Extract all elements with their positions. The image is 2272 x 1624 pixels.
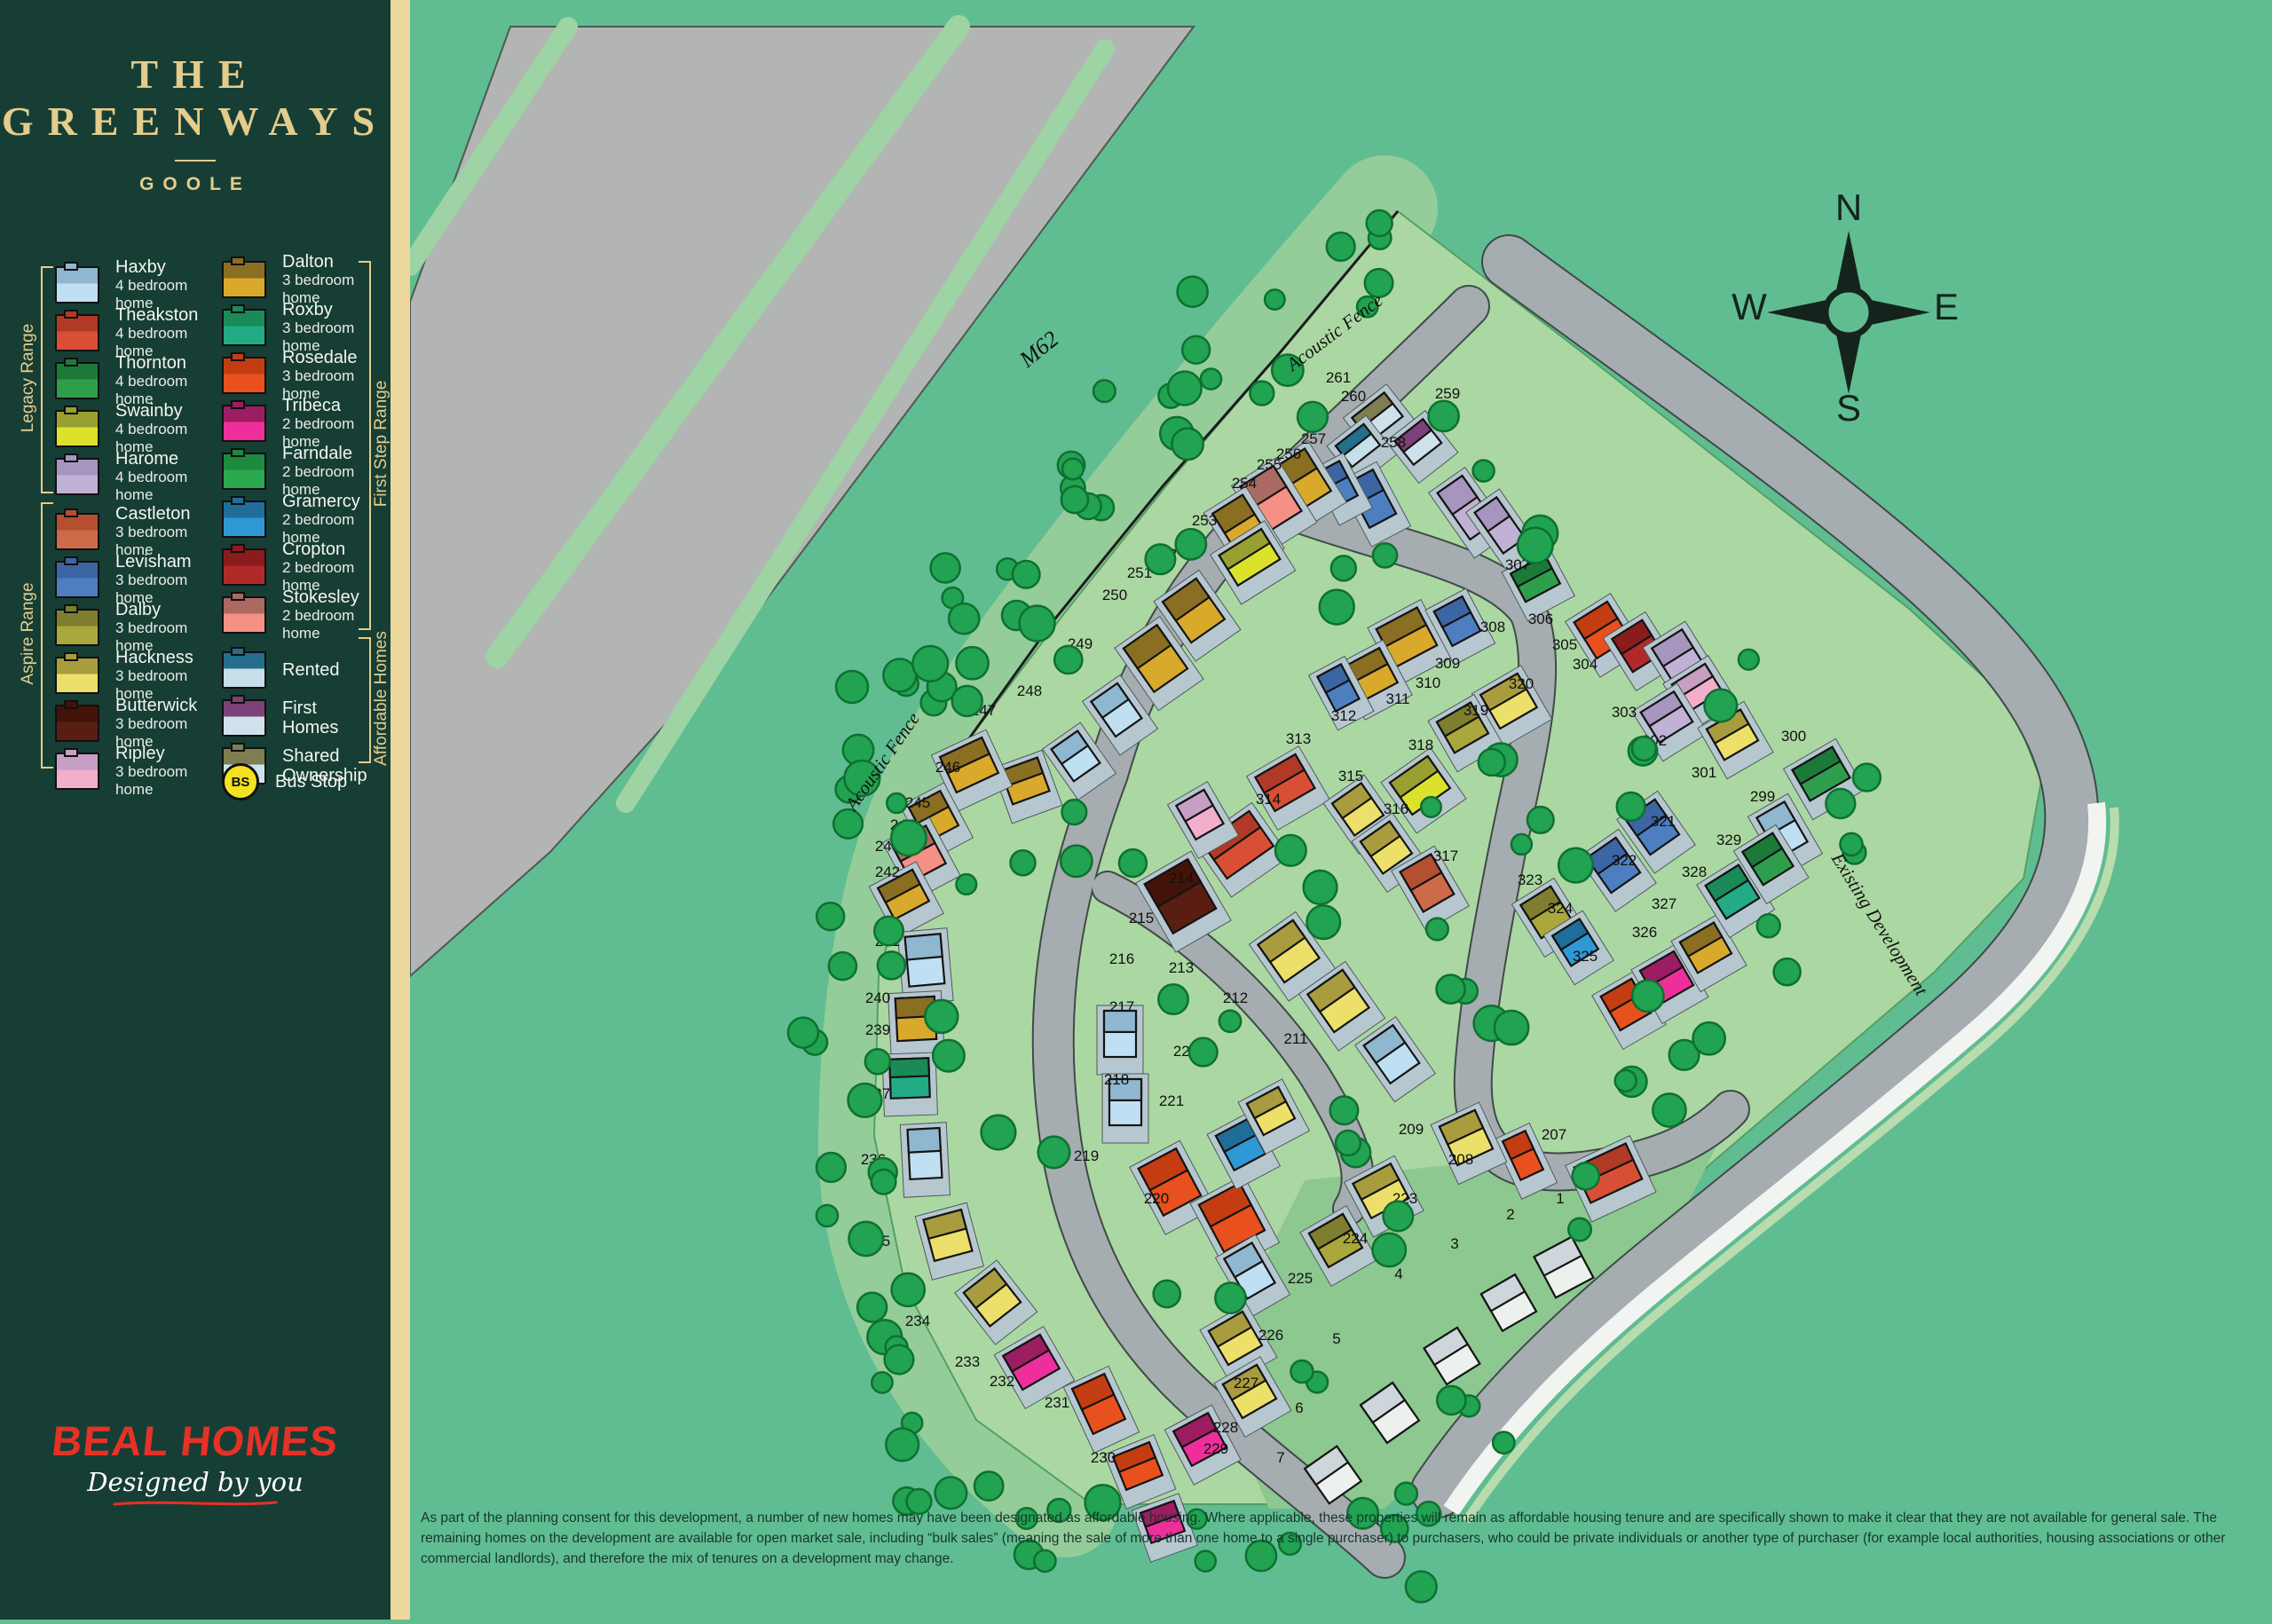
chimney bbox=[231, 544, 245, 553]
chimney bbox=[231, 592, 245, 601]
plot-number: 308 bbox=[1480, 619, 1505, 635]
tree-icon bbox=[1406, 1572, 1437, 1603]
tree-icon bbox=[1853, 764, 1881, 792]
plot-number: 316 bbox=[1384, 800, 1408, 817]
tree-icon bbox=[1384, 1202, 1414, 1232]
legend-item-firsthomes: First Homes bbox=[222, 696, 377, 740]
tree-icon bbox=[788, 1018, 818, 1048]
plot-number: 310 bbox=[1416, 674, 1440, 691]
bus-stop-legend-item: BS Bus Stop bbox=[222, 763, 347, 800]
tree-icon bbox=[1265, 289, 1284, 309]
tree-icon bbox=[1146, 544, 1176, 574]
tree-icon bbox=[1020, 606, 1055, 642]
legend-item-tribeca: Tribeca 2 bedroom home bbox=[222, 401, 377, 445]
tree-icon bbox=[982, 1116, 1016, 1150]
tree-icon bbox=[1219, 1011, 1241, 1032]
legend-item-text: Harome 4 bedroom home bbox=[115, 449, 224, 505]
tree-icon bbox=[1330, 1097, 1359, 1125]
plot-number: 232 bbox=[990, 1373, 1014, 1390]
tree-icon bbox=[925, 1000, 958, 1033]
rosedale-house-icon bbox=[222, 357, 266, 394]
plot-number: 318 bbox=[1408, 737, 1433, 753]
tree-icon bbox=[1154, 1281, 1180, 1307]
plot-number: 4 bbox=[1394, 1265, 1402, 1282]
range-bracket-label: First Step Range bbox=[372, 381, 391, 508]
range-group-first-step-range: Dalton 3 bedroom home Roxby 3 bedroom ho… bbox=[222, 257, 377, 637]
tree-icon bbox=[857, 1293, 887, 1322]
tree-icon bbox=[1615, 1070, 1637, 1092]
plot-number: 314 bbox=[1256, 791, 1281, 808]
plot-number: 225 bbox=[1288, 1270, 1313, 1287]
chimney bbox=[64, 406, 78, 414]
dalton-house-icon bbox=[222, 261, 266, 298]
legend-item-thornton: Thornton 4 bedroom home bbox=[55, 359, 224, 403]
tree-icon bbox=[816, 1153, 846, 1182]
tree-icon bbox=[1617, 792, 1645, 821]
chimney bbox=[231, 400, 245, 409]
plot-number: 326 bbox=[1632, 924, 1657, 941]
house-type-name: Hackness bbox=[115, 648, 224, 667]
ripley-house-icon bbox=[55, 753, 99, 790]
tree-icon bbox=[1298, 402, 1328, 432]
compass-hub bbox=[1826, 289, 1872, 335]
dalby-house-icon bbox=[55, 609, 99, 646]
tree-icon bbox=[1061, 486, 1088, 513]
house-type-name: Harome bbox=[115, 449, 224, 469]
legend-item-rosedale: Rosedale 3 bedroom home bbox=[222, 353, 377, 398]
tree-icon bbox=[1568, 1218, 1590, 1241]
plot-number: 253 bbox=[1192, 512, 1217, 529]
chimney bbox=[64, 604, 78, 613]
rented-house-icon bbox=[222, 651, 266, 689]
house bbox=[900, 1123, 950, 1198]
tree-icon bbox=[829, 952, 856, 980]
tree-icon bbox=[1429, 401, 1459, 431]
tagline-underline bbox=[111, 1499, 280, 1508]
tree-icon bbox=[1304, 871, 1337, 904]
roxby-house-icon bbox=[222, 309, 266, 346]
tree-icon bbox=[952, 686, 982, 716]
legend-sidebar: THE GREENWAYS GOOLE Haxby 4 bedroom home… bbox=[0, 0, 390, 1620]
legend-item-swainby: Swainby 4 bedroom home bbox=[55, 406, 224, 451]
tree-icon bbox=[885, 1345, 914, 1375]
tree-icon bbox=[1373, 1234, 1406, 1266]
chimney bbox=[231, 743, 245, 752]
chimney bbox=[231, 448, 245, 457]
tree-icon bbox=[1158, 984, 1187, 1013]
plot-number: 208 bbox=[1448, 1151, 1473, 1168]
chimney bbox=[64, 453, 78, 462]
chimney bbox=[64, 652, 78, 661]
tree-icon bbox=[1171, 429, 1203, 460]
tree-icon bbox=[1093, 380, 1116, 402]
tree-icon bbox=[874, 917, 903, 946]
range-bracket-label: Affordable Homes bbox=[372, 631, 391, 766]
tree-icon bbox=[1437, 975, 1465, 1004]
tree-icon bbox=[1367, 210, 1392, 236]
plot-number: 229 bbox=[1203, 1440, 1228, 1457]
tree-icon bbox=[1373, 543, 1397, 567]
tree-icon bbox=[974, 1471, 1003, 1500]
brand-logo: BEAL HOMES bbox=[0, 1416, 393, 1465]
chimney bbox=[64, 262, 78, 271]
plot-number: 324 bbox=[1548, 900, 1573, 917]
harome-house-icon bbox=[55, 458, 99, 495]
tree-icon bbox=[1119, 849, 1147, 877]
tree-icon bbox=[935, 1478, 967, 1510]
plot-number: 327 bbox=[1652, 895, 1676, 912]
plot-number: 231 bbox=[1045, 1394, 1069, 1411]
firsthomes-house-icon bbox=[222, 699, 266, 737]
tree-icon bbox=[956, 874, 976, 895]
gramercy-house-icon bbox=[222, 501, 266, 538]
plot-number: 322 bbox=[1612, 852, 1637, 869]
chimney bbox=[64, 700, 78, 709]
tree-icon bbox=[1010, 850, 1035, 875]
plot-number: 212 bbox=[1223, 989, 1248, 1006]
tree-icon bbox=[1632, 980, 1664, 1012]
range-group-legacy-range: Haxby 4 bedroom home Theakston 4 bedroom… bbox=[55, 263, 224, 499]
legend-item-harome: Harome 4 bedroom home bbox=[55, 454, 224, 499]
chimney bbox=[64, 508, 78, 517]
page: THE GREENWAYS GOOLE Haxby 4 bedroom home… bbox=[0, 0, 2272, 1620]
legend-item-theakston: Theakston 4 bedroom home bbox=[55, 311, 224, 355]
cropton-house-icon bbox=[222, 548, 266, 586]
tree-icon bbox=[1757, 914, 1780, 937]
tree-icon bbox=[1331, 556, 1356, 580]
plot-number: 230 bbox=[1091, 1449, 1116, 1466]
plot-number: 260 bbox=[1341, 388, 1366, 405]
plot-number: 321 bbox=[1651, 813, 1676, 830]
haxby-house-icon bbox=[55, 266, 99, 304]
tree-icon bbox=[1013, 561, 1040, 588]
range-bracket bbox=[41, 502, 53, 769]
tree-icon bbox=[848, 1084, 882, 1117]
page-title: THE GREENWAYS bbox=[0, 51, 390, 146]
tree-icon bbox=[1527, 807, 1554, 833]
tree-icon bbox=[1182, 336, 1210, 364]
tree-icon bbox=[865, 1049, 890, 1074]
tree-icon bbox=[1062, 459, 1084, 480]
plot-number: 258 bbox=[1381, 434, 1406, 451]
plot-number: 255 bbox=[1257, 456, 1282, 473]
tribeca-house-icon bbox=[222, 405, 266, 442]
chimney bbox=[231, 496, 245, 505]
tree-icon bbox=[1061, 846, 1092, 877]
plot-number: 245 bbox=[905, 794, 930, 811]
tree-icon bbox=[1421, 797, 1441, 817]
chimney bbox=[231, 695, 245, 704]
plot-number: 219 bbox=[1074, 1147, 1099, 1164]
house-type-name: Thornton bbox=[115, 353, 224, 373]
tree-icon bbox=[891, 821, 927, 856]
tree-icon bbox=[1479, 749, 1505, 776]
tree-icon bbox=[1061, 800, 1086, 824]
plot-number: 299 bbox=[1750, 788, 1775, 805]
legend-item-hackness: Hackness 3 bedroom home bbox=[55, 653, 224, 698]
plot-number: 209 bbox=[1399, 1121, 1424, 1138]
legend-item-text: Rented bbox=[282, 660, 340, 680]
plot-number: 239 bbox=[865, 1021, 890, 1038]
legend-item-roxby: Roxby 3 bedroom home bbox=[222, 305, 377, 350]
plot-number: 325 bbox=[1573, 948, 1597, 965]
plot-number: 5 bbox=[1332, 1330, 1340, 1347]
plot-number: 309 bbox=[1435, 655, 1460, 672]
plot-number: 312 bbox=[1331, 707, 1356, 724]
plot-number: 317 bbox=[1433, 847, 1458, 864]
plot-number: 216 bbox=[1109, 950, 1134, 967]
tree-icon bbox=[1275, 835, 1306, 866]
house-roof bbox=[905, 934, 943, 959]
chimney bbox=[64, 748, 78, 757]
affordable-housing-disclaimer: As part of the planning consent for this… bbox=[421, 1509, 2249, 1570]
plot-number: 311 bbox=[1385, 690, 1409, 707]
plot-number: 233 bbox=[955, 1353, 980, 1370]
title-line-1: THE bbox=[0, 51, 390, 99]
tree-icon bbox=[1215, 1282, 1245, 1313]
site-plan-map: 2612602592582572562552542532522512502492… bbox=[410, 0, 2272, 1620]
thornton-house-icon bbox=[55, 362, 99, 399]
legend-item-dalton: Dalton 3 bedroom home bbox=[222, 257, 377, 302]
plot-number: 246 bbox=[935, 759, 960, 776]
plot-number: 3 bbox=[1450, 1235, 1458, 1252]
house-type-desc: 4 bedroom home bbox=[115, 469, 224, 505]
brand-tagline: Designed by you bbox=[0, 1467, 390, 1497]
tree-icon bbox=[1038, 1137, 1070, 1169]
tree-icon bbox=[912, 646, 948, 682]
legend-item-butterwick: Butterwick 3 bedroom home bbox=[55, 701, 224, 745]
plot-number: 214 bbox=[1169, 870, 1194, 887]
plot-number: 301 bbox=[1692, 764, 1716, 781]
tree-icon bbox=[1201, 368, 1221, 389]
plot-number: 261 bbox=[1326, 369, 1351, 386]
tree-icon bbox=[816, 1205, 838, 1226]
chimney bbox=[231, 304, 245, 313]
plot-number: 228 bbox=[1213, 1419, 1238, 1436]
plot-number: 224 bbox=[1343, 1230, 1368, 1247]
tree-icon bbox=[836, 671, 868, 703]
legend-column-left: Haxby 4 bedroom home Theakston 4 bedroom… bbox=[55, 263, 224, 804]
tree-icon bbox=[1327, 233, 1355, 261]
butterwick-house-icon bbox=[55, 705, 99, 742]
house-type-name: Swainby bbox=[115, 401, 224, 421]
legend-item-ripley: Ripley 3 bedroom home bbox=[55, 749, 224, 793]
levisham-house-icon bbox=[55, 561, 99, 598]
plot-number: 240 bbox=[865, 989, 890, 1006]
tree-icon bbox=[1739, 650, 1759, 670]
tree-icon bbox=[1395, 1483, 1417, 1505]
chimney bbox=[64, 358, 78, 367]
range-bracket-label: Aspire Range bbox=[19, 582, 38, 684]
plot-number: 221 bbox=[1159, 1092, 1184, 1109]
chimney bbox=[64, 310, 78, 319]
tree-icon bbox=[1054, 646, 1082, 674]
legend-item-dalby: Dalby 3 bedroom home bbox=[55, 605, 224, 650]
location-label: GOOLE bbox=[0, 174, 390, 195]
tree-icon bbox=[1704, 690, 1737, 722]
tree-icon bbox=[887, 793, 906, 813]
compass-letter-w: W bbox=[1732, 286, 1767, 327]
tree-icon bbox=[883, 658, 916, 691]
title-line-2: GREENWAYS bbox=[0, 99, 390, 146]
plot-number: 323 bbox=[1518, 871, 1542, 888]
house-type-name: Levisham bbox=[115, 552, 224, 572]
castleton-house-icon bbox=[55, 513, 99, 550]
house-type-name: Ripley bbox=[115, 744, 224, 763]
plot-number: 220 bbox=[1144, 1190, 1169, 1207]
plot-number: 305 bbox=[1552, 636, 1577, 653]
plot-number: 213 bbox=[1169, 959, 1194, 976]
house-type-name: Dalby bbox=[115, 600, 224, 619]
tree-icon bbox=[949, 603, 979, 634]
plot-number: 226 bbox=[1258, 1327, 1283, 1344]
plot-number: 234 bbox=[905, 1313, 930, 1329]
house-type-name: Theakston bbox=[115, 305, 224, 325]
tree-icon bbox=[1176, 529, 1206, 559]
tree-icon bbox=[1493, 1431, 1514, 1453]
plot-number: 306 bbox=[1528, 611, 1553, 627]
plot-number: 227 bbox=[1234, 1375, 1258, 1391]
tree-icon bbox=[816, 903, 844, 930]
plot-number: 328 bbox=[1682, 863, 1707, 880]
range-bracket bbox=[359, 261, 371, 630]
gold-divider-stripe bbox=[390, 0, 410, 1620]
plot-number: 320 bbox=[1509, 675, 1534, 692]
tree-icon bbox=[1473, 461, 1495, 482]
legend-item-farndale: Farndale 2 bedroom home bbox=[222, 449, 377, 493]
plot-number: 259 bbox=[1435, 385, 1460, 402]
plot-number: 254 bbox=[1232, 475, 1257, 492]
tree-icon bbox=[878, 951, 905, 979]
tree-icon bbox=[1306, 905, 1340, 939]
farndale-house-icon bbox=[222, 453, 266, 490]
theakston-house-icon bbox=[55, 314, 99, 351]
legend-item-stokesley: Stokesley 2 bedroom home bbox=[222, 593, 377, 637]
tree-icon bbox=[931, 553, 960, 582]
tree-icon bbox=[1178, 277, 1208, 307]
plot-number: 329 bbox=[1716, 832, 1741, 848]
house bbox=[1097, 1005, 1143, 1075]
plot-number: 315 bbox=[1338, 768, 1363, 784]
tree-icon bbox=[1511, 834, 1532, 855]
plot-number: 319 bbox=[1463, 702, 1488, 719]
tree-icon bbox=[1437, 1386, 1465, 1415]
tree-icon bbox=[1168, 372, 1202, 406]
plot-number: 215 bbox=[1129, 910, 1154, 926]
tree-icon bbox=[1653, 1093, 1685, 1126]
plot-number: 248 bbox=[1017, 682, 1042, 699]
house-type-name: Butterwick bbox=[115, 696, 224, 715]
tree-icon bbox=[1320, 590, 1354, 625]
tree-icon bbox=[1558, 848, 1593, 883]
compass-letter-s: S bbox=[1836, 387, 1861, 429]
tree-icon bbox=[1426, 918, 1448, 941]
tree-icon bbox=[892, 1273, 925, 1306]
legend-item-gramercy: Gramercy 2 bedroom home bbox=[222, 497, 377, 541]
plot-number: 313 bbox=[1286, 730, 1311, 747]
tree-icon bbox=[1774, 958, 1801, 985]
chimney bbox=[231, 256, 245, 265]
plot-number: 1 bbox=[1556, 1190, 1564, 1207]
plot-number: 242 bbox=[875, 863, 900, 880]
plot-number: 7 bbox=[1276, 1449, 1284, 1466]
tree-icon bbox=[886, 1429, 919, 1462]
bus-stop-label: Bus Stop bbox=[275, 772, 347, 792]
legend-item-levisham: Levisham 3 bedroom home bbox=[55, 557, 224, 602]
compass-letter-n: N bbox=[1835, 186, 1862, 228]
house-roof bbox=[889, 1058, 929, 1077]
range-group-aspire-range: Castleton 3 bedroom home Levisham 3 bedr… bbox=[55, 509, 224, 793]
plot-number: 218 bbox=[1104, 1071, 1129, 1088]
legend-item-text: Ripley 3 bedroom home bbox=[115, 744, 224, 800]
plot-number: 211 bbox=[1283, 1030, 1307, 1047]
chimney bbox=[231, 352, 245, 361]
tree-icon bbox=[872, 1372, 892, 1392]
plot-number: 304 bbox=[1573, 656, 1597, 673]
house-type-name: Castleton bbox=[115, 504, 224, 524]
chimney bbox=[231, 647, 245, 656]
plot-number: 6 bbox=[1295, 1399, 1303, 1416]
house-type-name: Rented bbox=[282, 660, 340, 680]
tree-icon bbox=[1336, 1131, 1361, 1155]
tree-icon bbox=[1573, 1163, 1599, 1189]
plot-number: 207 bbox=[1542, 1126, 1566, 1143]
tree-icon bbox=[1693, 1022, 1725, 1054]
tree-icon bbox=[933, 1040, 965, 1072]
stokesley-house-icon bbox=[222, 596, 266, 634]
range-bracket-label: Legacy Range bbox=[19, 324, 38, 433]
house-type-name: Haxby bbox=[115, 257, 224, 277]
legend-item-cropton: Cropton 2 bedroom home bbox=[222, 545, 377, 589]
compass-letter-e: E bbox=[1934, 286, 1959, 327]
plot-number: 2 bbox=[1506, 1206, 1514, 1223]
tree-icon bbox=[956, 647, 988, 679]
tree-icon bbox=[872, 1170, 896, 1194]
legend-item-haxby: Haxby 4 bedroom home bbox=[55, 263, 224, 307]
tree-icon bbox=[1495, 1011, 1528, 1045]
house-roof bbox=[908, 1128, 941, 1153]
tree-icon bbox=[849, 1222, 883, 1256]
title-divider bbox=[175, 160, 216, 162]
chimney bbox=[64, 556, 78, 565]
plot-number: 250 bbox=[1102, 587, 1127, 603]
tree-icon bbox=[1250, 382, 1274, 406]
site-plan-svg: 2612602592582572562552542532522512502492… bbox=[410, 0, 2272, 1620]
brand-block: BEAL HOMES Designed by you bbox=[0, 1416, 390, 1508]
legend-item-rented: Rented bbox=[222, 648, 377, 692]
plot-number: 303 bbox=[1612, 704, 1637, 721]
house-type-desc: 3 bedroom home bbox=[115, 763, 224, 800]
bus-stop-icon: BS bbox=[222, 763, 259, 800]
development-title-block: THE GREENWAYS GOOLE bbox=[0, 51, 390, 195]
legend-item-castleton: Castleton 3 bedroom home bbox=[55, 509, 224, 554]
range-bracket bbox=[41, 266, 53, 493]
tree-icon bbox=[1632, 737, 1656, 761]
legend-column-right: Dalton 3 bedroom home Roxby 3 bedroom ho… bbox=[222, 257, 377, 799]
tree-icon bbox=[1290, 1360, 1313, 1383]
tree-icon bbox=[1189, 1038, 1218, 1067]
hackness-house-icon bbox=[55, 657, 99, 694]
range-bracket bbox=[359, 637, 371, 763]
plot-number: 300 bbox=[1781, 728, 1806, 745]
tree-icon bbox=[1826, 789, 1855, 818]
tree-icon bbox=[1518, 528, 1553, 564]
plot-number: 217 bbox=[1109, 998, 1134, 1015]
swainby-house-icon bbox=[55, 410, 99, 447]
